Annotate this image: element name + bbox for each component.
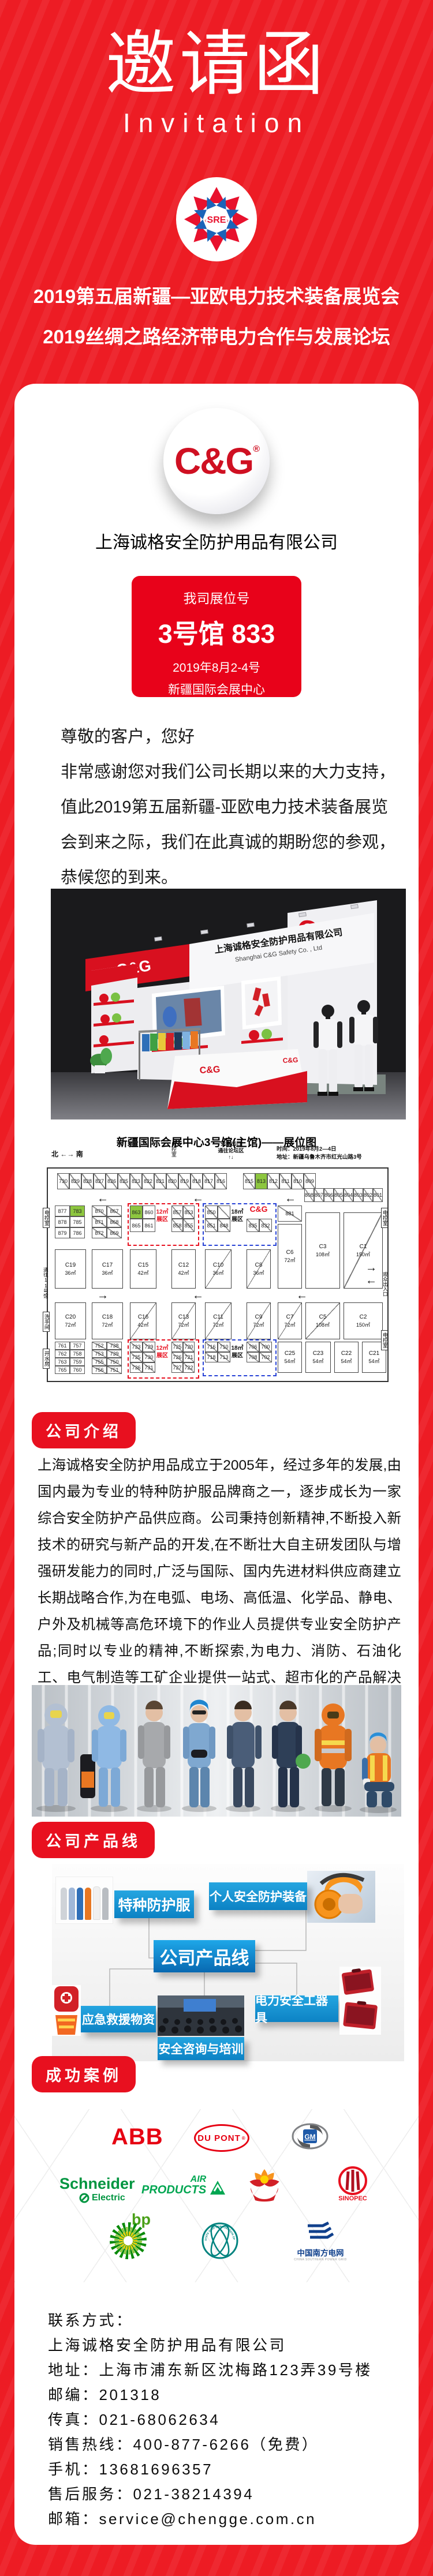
booth-cell: 758: [70, 1350, 85, 1358]
booth-cell: 786: [70, 1227, 85, 1238]
compass: 北 ←→ 南: [51, 1149, 83, 1159]
company-name: 上海诚格安全防护用品有限公司: [14, 528, 419, 553]
label-to-hall-11: 通往11号馆: [43, 1265, 48, 1300]
booth-cell: 827: [94, 1173, 106, 1189]
booth-cell: 820: [166, 1173, 178, 1189]
node-personal-safety-equipment: 个人安全防护装备: [209, 1882, 307, 1910]
expo-title-line1: 2019第五届新疆—亚欧电力技术装备展览会: [0, 281, 433, 309]
contact-block: 联系方式：上海诚格安全防护用品有限公司地址：上海市浦东新区沈梅路123弄39号楼…: [48, 2308, 406, 2532]
label-control-room-right: 电控室: [381, 1208, 388, 1228]
booth-grid-4: 752738753739755750756751: [92, 1342, 122, 1374]
label-washroom: 洗手间: [43, 1312, 50, 1332]
contact-line: 联系方式：: [48, 2308, 406, 2333]
csg-logo: 中国南方电网 CHINA SOUTHERN POWER GRID: [286, 2222, 355, 2262]
booth-cell: 757: [70, 1342, 85, 1350]
booth-cell: 825: [118, 1173, 130, 1189]
booth-cell: 700: [259, 1342, 272, 1352]
booth-cell: 804: [344, 1188, 353, 1202]
hall-c9: C972㎡: [247, 1302, 271, 1339]
booth-cell: 752: [92, 1342, 107, 1350]
hall-c17: C1736㎡: [92, 1249, 123, 1289]
booth-cell: 857: [171, 1205, 183, 1219]
air-products-logo: AIRPRODUCTS: [141, 2175, 226, 2196]
aisle-arrow-icon: →: [97, 1290, 109, 1301]
booth-cell: 716: [205, 1342, 218, 1352]
zone-label-12: 12㎡展区: [154, 1345, 170, 1360]
booth-cell: 751: [107, 1366, 122, 1374]
booth-cell: 863: [130, 1205, 143, 1219]
hall-c5: C5108㎡: [305, 1302, 340, 1339]
booth-cell: 872: [92, 1227, 107, 1238]
petrochina-logo: [248, 2167, 281, 2205]
label-audience-entrance: 观众出入口: [382, 1270, 387, 1298]
booth-cell: 710: [218, 1342, 230, 1352]
booth-cell: 706: [247, 1342, 259, 1352]
node-special-protective-clothing: 特种防护服: [114, 1890, 194, 1918]
booth-cell: 826: [106, 1173, 118, 1189]
booth-cell: 731: [143, 1362, 155, 1373]
section-badge-intro: 公司介绍: [32, 1412, 136, 1448]
booth-cell: 868: [107, 1216, 122, 1227]
booth-cell: 807: [314, 1188, 324, 1202]
company-logo: C&G®: [163, 408, 270, 514]
node-safety-consulting-training: 安全咨询与培训: [158, 2037, 244, 2060]
booth-cell: 835: [247, 1219, 259, 1232]
booth-cell: 803: [353, 1188, 363, 1202]
contact-line: 传真：021-68062634: [48, 2407, 406, 2432]
greeting-body: 非常感谢您对我们公司长期以来的大力支持，值此2019第五届新疆-亚欧电力技术装备…: [61, 755, 405, 896]
booth-cell: 783: [70, 1205, 85, 1216]
booth-cell: 810: [292, 1173, 304, 1189]
label-safety-exit: 安全出口通往论坛区↑↓: [211, 1141, 251, 1161]
aisle-arrow-icon: ←: [296, 1290, 308, 1301]
booth-cell: 867: [107, 1205, 122, 1216]
booth-grid-3: 761757762758763759765760: [55, 1342, 85, 1374]
booth-cell: 877: [55, 1205, 70, 1216]
brand-logotype-cn: 邀请函: [0, 25, 433, 103]
booth-cell: 819: [178, 1173, 191, 1189]
booth-grid-red-bot-b: 725720726721727722: [171, 1342, 195, 1373]
contact-line: 售后服务：021-38214394: [48, 2482, 406, 2507]
hall-c8: C836㎡: [247, 1249, 271, 1289]
booth-cell: 869: [107, 1227, 122, 1238]
sre-expo-logo-icon: SRE ‹ ›: [175, 177, 258, 262]
booth-cell: 713: [218, 1352, 230, 1362]
sinopec-logo: SINOPEC: [335, 2166, 370, 2203]
svg-text:C&G: C&G: [199, 1065, 220, 1076]
label-water-room: 开水房: [43, 1349, 50, 1369]
cg-booth-marker: C&G: [244, 1204, 273, 1214]
dupont-logo: DU PONT®: [194, 2124, 249, 2152]
booth-cell: 725: [171, 1342, 183, 1352]
booth-grid-1: 877783878785879786: [55, 1205, 85, 1238]
booth-cell: 750: [107, 1358, 122, 1366]
entrance-arrow-icon: ←: [365, 1275, 377, 1286]
booth-number: 3号馆 833: [158, 613, 275, 650]
label-control-room-top: 电控室: [170, 1140, 176, 1159]
booth-grid-blue-top-a: 850851848: [205, 1205, 230, 1232]
expo-title-line2: 2019丝绸之路经济带电力合作与发展论坛: [0, 321, 433, 349]
booth-cell: 829: [69, 1173, 81, 1189]
booth-row-far-right: 808807806805804803802801: [304, 1188, 383, 1202]
contact-line: 上海诚格安全防护用品有限公司: [48, 2333, 406, 2358]
booth-cell: 765: [55, 1366, 70, 1374]
booth-cell: 860: [143, 1205, 155, 1219]
booth-cell: 729: [143, 1342, 155, 1352]
product-line-diagram: 特种防护服 个人安全防护装备 公司产品线 应急救援物资: [52, 1864, 404, 2061]
abb-logo: ABB: [111, 2124, 163, 2150]
booth-row-top-left: 7308298288278268258238228218208198188178…: [57, 1173, 227, 1189]
bp-helios-icon: [110, 2222, 147, 2259]
booth-cell: 739: [107, 1350, 122, 1358]
booth-cell: 812: [267, 1173, 279, 1189]
booth-cell: 865: [130, 1219, 143, 1232]
booth-grid-red-bot-a: 733729735730736731: [130, 1342, 155, 1373]
hall-c15: C1542㎡: [130, 1249, 156, 1289]
booth-cell: 879: [55, 1227, 70, 1238]
photo-protective-suits: [55, 1877, 113, 1924]
booth-cell: 850: [205, 1205, 218, 1219]
hall-c6: C672㎡: [278, 1224, 302, 1289]
booth-cell: [218, 1205, 230, 1219]
hall-c20: C2072㎡: [55, 1302, 86, 1339]
booth-grid-red-top-a: 863860865861: [130, 1205, 155, 1232]
svg-text:GM: GM: [304, 2133, 315, 2141]
zone-label-18: 18㎡展区: [229, 1209, 245, 1223]
booth-cell: 702: [259, 1352, 272, 1362]
node-emergency-rescue-supplies: 应急救援物资: [81, 2006, 156, 2032]
booth-cell: 722: [183, 1362, 195, 1373]
hall-c11: C1172㎡: [205, 1302, 232, 1339]
booth-cell: 708: [247, 1352, 259, 1362]
photo-emergency-bag: [52, 1985, 81, 2036]
booth-grid-red-top-b: 857853858855: [171, 1205, 195, 1232]
svg-text:SINOPEC: SINOPEC: [338, 2195, 367, 2202]
booth-cell: 755: [92, 1358, 107, 1366]
booth-cell: 832: [259, 1219, 272, 1232]
contact-line: 邮箱：service@chengge.com.cn: [48, 2507, 406, 2532]
booth-cell: 816: [215, 1173, 227, 1189]
hall-c16: C1642㎡: [130, 1302, 156, 1339]
photo-training-conference: [158, 1995, 244, 2036]
booth-cell: 811: [279, 1173, 292, 1189]
booth-cell: 818: [191, 1173, 203, 1189]
content-card: C&G® 上海诚格安全防护用品有限公司 我司展位号 3号馆 833 2019年8…: [14, 384, 419, 2545]
contact-line: 地址：上海市浦东新区沈梅路123弄39号楼: [48, 2358, 406, 2383]
booth-grid-2: 870867871868872869: [92, 1205, 122, 1238]
booth-cell: 801: [373, 1188, 383, 1202]
booth-cell: 871: [92, 1216, 107, 1227]
expo-venue: 新疆国际会展中心: [168, 680, 265, 698]
booth-cell: 736: [130, 1362, 143, 1373]
node-product-line-center: 公司产品线: [154, 1940, 255, 1972]
booth-cell: 848: [218, 1219, 230, 1232]
booth-cell: 815: [243, 1173, 255, 1189]
contact-line: 销售热线：400-877-6266（免费）: [48, 2432, 406, 2457]
floor-plan: 新疆国际会展中心3号馆(主馆)——展位图 北 ←→ 南 电控室 安全出口通往论坛…: [42, 1134, 391, 1391]
booth-cell: 738: [107, 1342, 122, 1350]
svg-text:SRE: SRE: [207, 215, 226, 225]
booth-cell: 727: [171, 1362, 183, 1373]
booth-cell: 753: [92, 1350, 107, 1358]
workers-photo: [32, 1685, 401, 1817]
booth-cell: 853: [183, 1205, 195, 1219]
contact-line: 手机：13681696357: [48, 2457, 406, 2482]
booth-cell: 805: [334, 1188, 344, 1202]
booth-cell: 760: [70, 1366, 85, 1374]
booth-cell: 721: [183, 1352, 195, 1362]
svg-text:C&G: C&G: [282, 1056, 298, 1065]
client-logos: ABB DU PONT® GM Schneider Electric AIRPR…: [14, 2109, 419, 2282]
booth-grid-blue-bot-b: 706700708702: [247, 1342, 272, 1362]
booth-cell: 735: [130, 1352, 143, 1362]
booth-number-box: 我司展位号 3号馆 833 2019年8月2-4号 新疆国际会展中心: [132, 576, 301, 697]
hall-c23: C2354㎡: [305, 1342, 331, 1373]
booth-row-top-right: 815813812811810809: [243, 1173, 316, 1189]
company-logo-text: C&G: [174, 440, 253, 482]
schneider-logo: Schneider Electric: [59, 2176, 135, 2203]
brand-logotype-en: Invitation: [0, 107, 433, 138]
registered-mark: ®: [253, 444, 259, 454]
booth-cell: 855: [183, 1219, 195, 1232]
photo-helmet-earmuffs: [307, 1871, 375, 1923]
booth-cell: 759: [70, 1358, 85, 1366]
booth-grid-blue-top-b: 835832: [247, 1219, 272, 1232]
booth-cell: 806: [324, 1188, 334, 1202]
photo-tool-cases: [339, 1967, 381, 2035]
booth-cell: 822: [142, 1173, 154, 1189]
booth-881: 881: [278, 1205, 302, 1222]
zone-label-18: 18㎡展区: [229, 1345, 245, 1360]
entrance-arrow-icon: →: [365, 1262, 377, 1274]
booth-cell: 785: [70, 1216, 85, 1227]
hall-c13: C1372㎡: [171, 1302, 196, 1339]
booth-cell: 726: [171, 1352, 183, 1362]
booth-grid-blue-bot-a: 716710718713: [205, 1342, 230, 1362]
booth-cell: 720: [183, 1342, 195, 1352]
sgm-logo: GM: [290, 2121, 330, 2151]
booth-cell: 821: [154, 1173, 166, 1189]
booth-cell: 802: [363, 1188, 373, 1202]
invitation-poster: 邀请函 Invitation SRE ‹ › 2019第五届新疆—亚欧电力技术装…: [0, 0, 433, 2576]
hall-c7: C772㎡: [278, 1302, 302, 1339]
booth-cell: 823: [130, 1173, 142, 1189]
expo-dates: 2019年8月2-4号: [173, 658, 260, 676]
section-badge-cases: 成功案例: [32, 2056, 136, 2092]
node-electric-safety-tools: 电力安全工器具: [255, 1995, 338, 2022]
aisle-arrow-icon: ←: [285, 1193, 296, 1204]
label-control-room-left: 电控室: [43, 1208, 50, 1228]
aisle-arrow-icon: ←: [192, 1193, 204, 1204]
booth-cell: 733: [130, 1342, 143, 1352]
booth-cell: 761: [55, 1342, 70, 1350]
booth-box-label: 我司展位号: [184, 587, 250, 607]
hall-c25: C2554㎡: [278, 1342, 302, 1373]
label-control-room-right2: 电控室: [381, 1330, 388, 1350]
booth-cell: 762: [55, 1350, 70, 1358]
booth-cell: 730: [143, 1352, 155, 1362]
hall-c19: C1936㎡: [55, 1249, 86, 1289]
hall-c3: C3108㎡: [305, 1212, 340, 1289]
hall-c12: C1242㎡: [171, 1249, 196, 1289]
hall-c22: C2254㎡: [334, 1342, 359, 1373]
booth-cell: 851: [205, 1219, 218, 1232]
booth-cell: 808: [304, 1188, 314, 1202]
booth-cell: 861: [143, 1219, 155, 1232]
svg-text:›: ›: [226, 218, 228, 224]
booth-cell: 813: [255, 1173, 267, 1189]
svg-text:‹: ‹: [204, 218, 206, 224]
section-badge-product: 公司产品线: [32, 1822, 155, 1858]
booth-cell: 756: [92, 1366, 107, 1374]
hall-c10: C1036㎡: [205, 1249, 232, 1289]
aisle-arrow-icon: ←: [192, 1290, 204, 1301]
company-intro-text: 上海诚格安全防护用品成立于2005年，经过多年的发展,由国内最为专业的特种防护服…: [38, 1452, 401, 1718]
zone-label-12: 12㎡展区: [154, 1209, 170, 1223]
booth-cell: 809: [304, 1173, 316, 1189]
aisle-arrow-icon: ←: [97, 1193, 109, 1204]
booth-cell: 878: [55, 1216, 70, 1227]
hall-c2: C2150㎡: [344, 1302, 383, 1339]
booth-render-photo: C&G 展位号：833 C&G 上海诚格安全防护用品有限公司 Shanghai …: [51, 889, 406, 1119]
booth-cell: 828: [81, 1173, 94, 1189]
floor-plan-info: 时间：2019年8月2—4日地址：新疆乌鲁木齐市红光山路3号: [277, 1145, 362, 1162]
booth-cell: 763: [55, 1358, 70, 1366]
state-grid-logo: STATE GRID CORPORATION OF CHINA: [201, 2222, 239, 2260]
booth-cell: 817: [203, 1173, 215, 1189]
booth-cell: 730: [57, 1173, 69, 1189]
hall-outline: 7308298288278268258238228218208198188178…: [47, 1167, 389, 1382]
greeting: 尊敬的客户，您好 非常感谢您对我们公司长期以来的大力支持，值此2019第五届新疆…: [61, 720, 405, 896]
booth-cell: 858: [171, 1219, 183, 1232]
hall-c18: C1872㎡: [92, 1302, 123, 1339]
greeting-salute: 尊敬的客户，您好: [61, 720, 405, 755]
booth-cell: 870: [92, 1205, 107, 1216]
booth-cell: 718: [205, 1352, 218, 1362]
contact-line: 邮编：201318: [48, 2383, 406, 2407]
